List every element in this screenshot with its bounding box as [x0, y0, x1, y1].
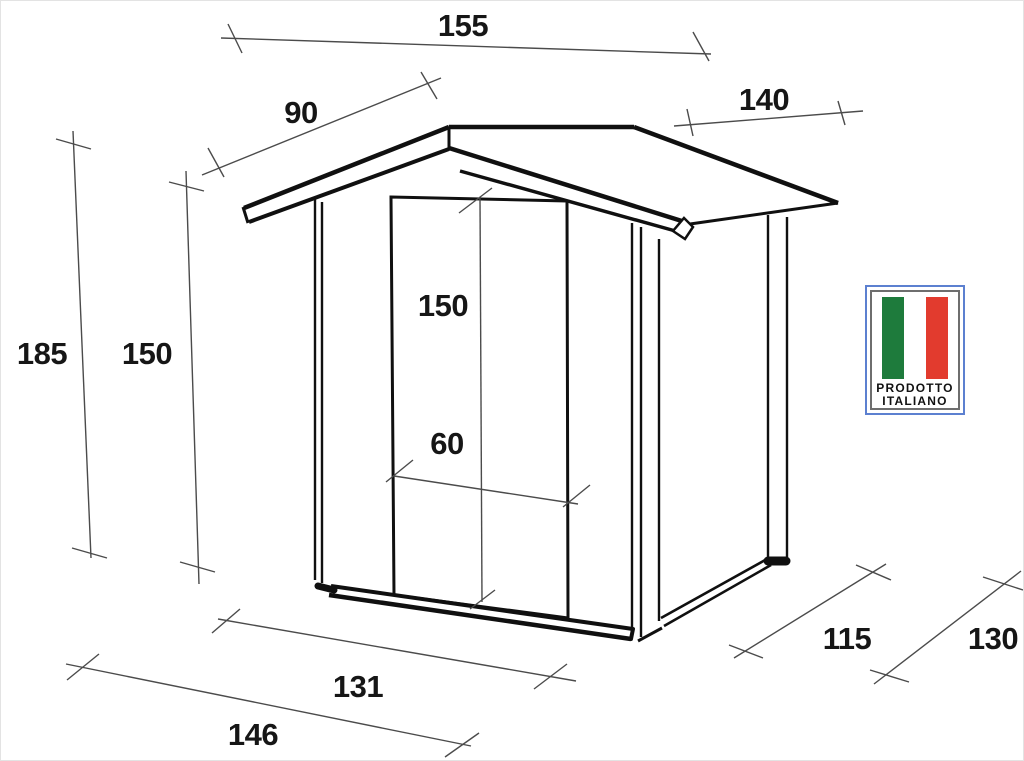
- italian-flag-icon: [882, 297, 949, 379]
- dim-label-roof-side: 140: [739, 82, 789, 117]
- flag-green-stripe: [882, 297, 904, 379]
- made-in-italy-badge: PRODOTTO ITALIANO: [865, 285, 965, 415]
- door-panel: [391, 197, 568, 618]
- dim-label-total-height: 185: [17, 336, 67, 371]
- dim-label-floor-width: 131: [333, 669, 383, 704]
- dim-label-floor-depth: 115: [823, 621, 872, 656]
- side-base-top-edge: [661, 559, 767, 618]
- dim-185-line: [73, 131, 91, 558]
- dim-131-tick-right: [534, 664, 567, 689]
- badge-inner-frame: PRODOTTO ITALIANO: [870, 290, 960, 410]
- dim-115-tick-left: [729, 645, 763, 658]
- left-fascia-top-edge: [244, 127, 449, 208]
- dim-90-line: [202, 78, 441, 175]
- dim-131-line: [218, 619, 576, 681]
- dim-140-tick-left: [687, 109, 693, 136]
- shed-dimension-diagram: 155 90 140 185 150 150 60 131 146 115 13…: [0, 0, 1024, 761]
- dim-label-wall-height: 150: [122, 336, 172, 371]
- shed-outline: [243, 127, 838, 641]
- dim-label-door-width: 60: [430, 426, 463, 461]
- flag-red-stripe: [926, 297, 948, 379]
- badge-text-line2: ITALIANO: [876, 395, 953, 408]
- dim-131-tick-left: [212, 609, 240, 633]
- dim-115-tick-right: [856, 565, 891, 580]
- dim-185-tick-bottom: [72, 548, 107, 558]
- dim-146-tick-left: [67, 654, 99, 680]
- dim-label-overall-depth: 130: [968, 621, 1018, 656]
- dim-150-wall-tick-bottom: [180, 562, 215, 572]
- dim-label-overall-width: 146: [228, 717, 278, 752]
- flag-white-stripe: [904, 297, 926, 379]
- dim-146-tick-right: [445, 733, 479, 757]
- dim-90-tick-left: [208, 148, 224, 177]
- front-base-right-cap: [631, 629, 633, 639]
- dim-label-roof-slope: 90: [284, 95, 317, 130]
- badge-text: PRODOTTO ITALIANO: [876, 382, 953, 408]
- dim-155-tick-right: [693, 32, 709, 61]
- dim-130-tick-right: [983, 577, 1023, 590]
- dim-label-roof-width: 155: [438, 8, 488, 43]
- dim-label-door-height: 150: [418, 288, 468, 323]
- dim-150-wall-line: [186, 171, 199, 584]
- side-base-bottom-edge: [664, 565, 771, 626]
